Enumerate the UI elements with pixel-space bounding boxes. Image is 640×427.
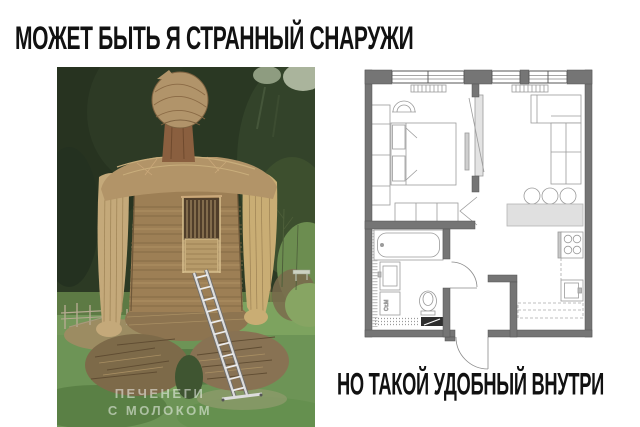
bar-stool (560, 188, 576, 204)
bathroom-furniture: Ст.М (374, 230, 444, 327)
entrance-door-arc (456, 337, 488, 369)
wickerman-photo: ПЕЧЕНЕГИ С МОЛОКОМ (57, 67, 315, 427)
tv (465, 133, 469, 170)
living-room-furniture (507, 85, 583, 226)
kitchen-furniture (518, 232, 583, 318)
door-swings (450, 262, 488, 369)
wickerman-photo-art: ПЕЧЕНЕГИ С МОЛОКОМ (57, 67, 315, 427)
meme-top-text: МОЖЕТ БЫТЬ Я СТРАННЫЙ СНАРУЖИ (15, 23, 413, 55)
sofa (531, 95, 581, 123)
washing-machine (380, 292, 400, 315)
window (392, 70, 464, 84)
bedroom-furniture (370, 85, 484, 225)
floor-plan-art: Ст.М (363, 68, 594, 370)
bar-stool (524, 188, 540, 204)
wardrobe (395, 203, 458, 222)
toilet (420, 291, 437, 311)
watermark-line2: С МОЛОКОМ (108, 403, 212, 418)
radiator (411, 85, 446, 92)
meme-canvas: МОЖЕТ БЫТЬ Я СТРАННЫЙ СНАРУЖИ (0, 0, 640, 427)
bathtub (374, 230, 443, 260)
torso-door (181, 196, 222, 273)
floor-plan: Ст.М (363, 68, 594, 370)
window (492, 70, 520, 84)
window (529, 70, 567, 84)
meme-bottom-text: НО ТАКОЙ УДОБНЫЙ ВНУТРИ (337, 369, 604, 401)
radiator (512, 85, 548, 92)
washing-machine-label: Ст.М (384, 300, 390, 311)
counter-dashed (518, 303, 583, 318)
watermark-line1: ПЕЧЕНЕГИ (115, 386, 206, 401)
bar-counter (507, 204, 583, 226)
bar-stool (542, 188, 558, 204)
